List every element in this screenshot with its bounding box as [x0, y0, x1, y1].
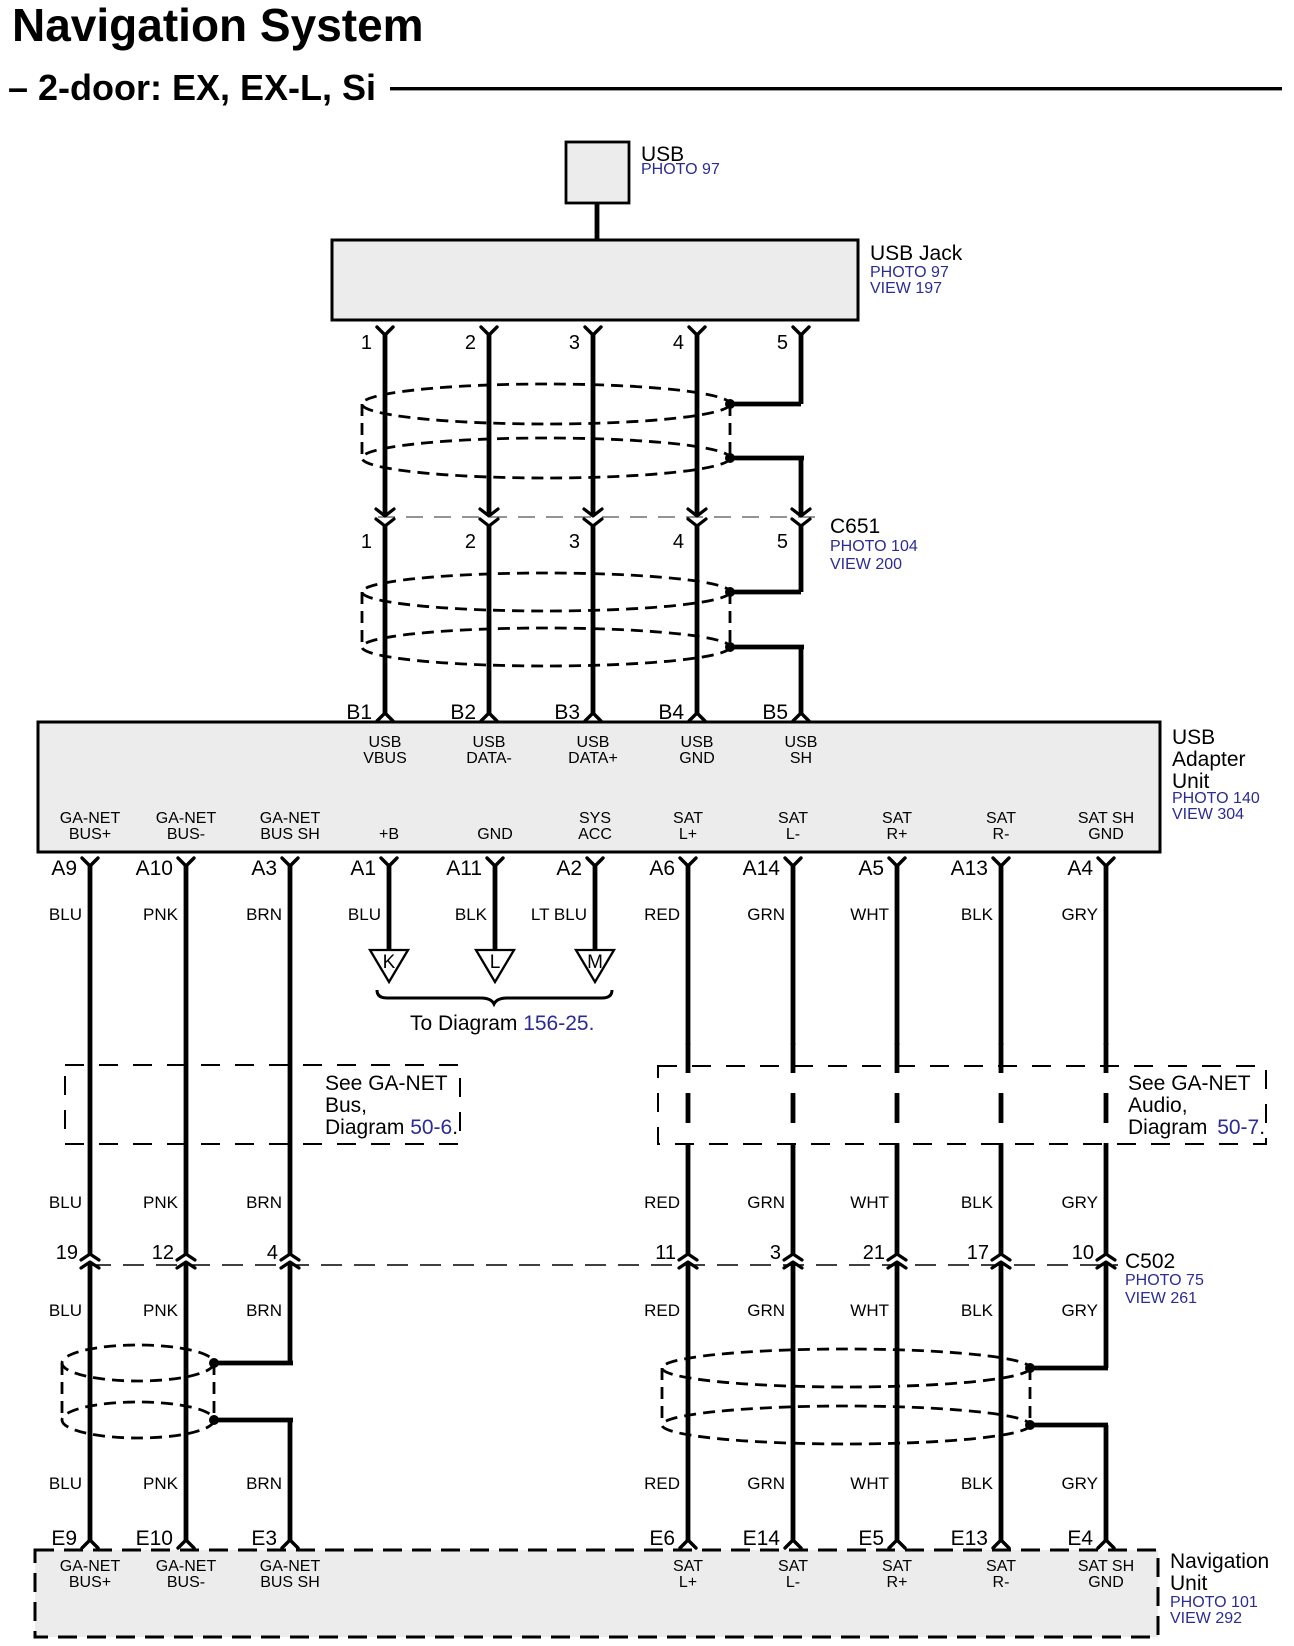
svg-text:4: 4 [673, 332, 684, 354]
svg-text:E4: E4 [1067, 1527, 1093, 1550]
svg-text:GRY: GRY [1061, 1193, 1098, 1212]
svg-text:SAT: SAT [673, 1558, 703, 1575]
svg-text:1: 1 [361, 531, 372, 553]
svg-text:BUS SH: BUS SH [260, 826, 320, 843]
svg-text:A10: A10 [136, 857, 173, 880]
svg-text:R+: R+ [887, 1574, 908, 1591]
svg-text:LT BLU: LT BLU [531, 905, 587, 924]
svg-text:PHOTO 97: PHOTO 97 [641, 161, 720, 178]
svg-text:VBUS: VBUS [363, 750, 407, 767]
svg-text:A11: A11 [446, 857, 482, 880]
svg-text:SAT: SAT [778, 1558, 808, 1575]
svg-text:VIEW 304: VIEW 304 [1172, 806, 1244, 823]
svg-text:BLU: BLU [348, 905, 381, 924]
svg-text:RED: RED [644, 1474, 680, 1493]
svg-text:11: 11 [655, 1242, 676, 1264]
svg-text:SAT: SAT [986, 1558, 1016, 1575]
svg-text:3: 3 [770, 1242, 781, 1264]
svg-text:C651: C651 [830, 515, 880, 538]
svg-text:A1: A1 [350, 857, 376, 880]
svg-text:PHOTO 101: PHOTO 101 [1170, 1594, 1258, 1611]
svg-text:SAT SH: SAT SH [1078, 810, 1134, 827]
svg-text:E5: E5 [858, 1527, 884, 1550]
svg-text:USB: USB [681, 734, 714, 751]
svg-text:PHOTO 104: PHOTO 104 [830, 538, 918, 555]
svg-text:PNK: PNK [143, 1301, 179, 1320]
svg-text:DATA+: DATA+ [568, 750, 618, 767]
svg-text:PNK: PNK [143, 905, 179, 924]
svg-text:R-: R- [993, 1574, 1010, 1591]
svg-text:4: 4 [673, 531, 684, 553]
svg-text:R-: R- [993, 826, 1010, 843]
svg-text:RED: RED [644, 1301, 680, 1320]
svg-text:GA-NET: GA-NET [60, 1558, 121, 1575]
svg-text:BUS+: BUS+ [69, 826, 111, 843]
svg-text:K: K [383, 952, 396, 973]
svg-text:SAT: SAT [778, 810, 808, 827]
svg-text:E14: E14 [743, 1527, 781, 1550]
svg-text:SH: SH [790, 750, 812, 767]
svg-text:SAT: SAT [986, 810, 1016, 827]
svg-text:E9: E9 [51, 1527, 77, 1550]
svg-text:See GA-NET: See GA-NET [325, 1072, 448, 1095]
svg-text:L-: L- [786, 1574, 800, 1591]
svg-text:RED: RED [644, 1193, 680, 1212]
svg-text:SAT: SAT [882, 810, 912, 827]
svg-text:A6: A6 [649, 857, 675, 880]
svg-text:L+: L+ [679, 1574, 697, 1591]
svg-text:M: M [587, 952, 603, 973]
svg-text:VIEW 261: VIEW 261 [1125, 1290, 1197, 1307]
svg-text:L+: L+ [679, 826, 697, 843]
svg-text:WHT: WHT [850, 1193, 889, 1212]
svg-text:BUS SH: BUS SH [260, 1574, 320, 1591]
svg-text:A14: A14 [743, 857, 781, 880]
svg-text:E6: E6 [649, 1527, 675, 1550]
svg-text:SYS: SYS [579, 810, 611, 827]
svg-text:To Diagram 156-25.: To Diagram 156-25. [410, 1012, 594, 1035]
svg-text:C502: C502 [1125, 1250, 1175, 1273]
svg-text:BLK: BLK [961, 1301, 994, 1320]
svg-text:GRN: GRN [747, 1193, 785, 1212]
svg-text:BRN: BRN [246, 905, 282, 924]
svg-text:5: 5 [777, 531, 788, 553]
svg-text:Unit: Unit [1170, 1572, 1208, 1595]
svg-text:SAT SH: SAT SH [1078, 1558, 1134, 1575]
svg-text:GND: GND [477, 826, 513, 843]
svg-text:3: 3 [569, 332, 580, 354]
svg-text:WHT: WHT [850, 905, 889, 924]
svg-text:Diagram 50-7.: Diagram 50-7. [1128, 1116, 1265, 1139]
svg-text:17: 17 [967, 1242, 989, 1264]
svg-text:12: 12 [152, 1242, 174, 1264]
svg-text:GRN: GRN [747, 1474, 785, 1493]
svg-text:A4: A4 [1067, 857, 1093, 880]
svg-text:BRN: BRN [246, 1193, 282, 1212]
svg-text:USB: USB [369, 734, 402, 751]
svg-text:GRN: GRN [747, 905, 785, 924]
svg-text:L: L [490, 952, 501, 973]
svg-text:GA-NET: GA-NET [260, 1558, 321, 1575]
svg-text:BLU: BLU [49, 1193, 82, 1212]
svg-text:BUS+: BUS+ [69, 1574, 111, 1591]
svg-text:A2: A2 [556, 857, 582, 880]
svg-text:3: 3 [569, 531, 580, 553]
svg-text:R+: R+ [887, 826, 908, 843]
svg-text:Navigation System: Navigation System [12, 0, 424, 51]
svg-text:BLU: BLU [49, 1474, 82, 1493]
svg-text:10: 10 [1072, 1242, 1094, 1264]
svg-text:PHOTO 97: PHOTO 97 [870, 264, 949, 281]
svg-text:SAT: SAT [882, 1558, 912, 1575]
svg-text:19: 19 [56, 1242, 78, 1264]
svg-text:USB: USB [1172, 726, 1215, 749]
svg-text:BLK: BLK [961, 905, 994, 924]
svg-text:GA-NET: GA-NET [156, 1558, 217, 1575]
svg-text:SAT: SAT [673, 810, 703, 827]
svg-text:BLK: BLK [961, 1193, 994, 1212]
svg-text:GRY: GRY [1061, 905, 1098, 924]
svg-text:GA-NET: GA-NET [60, 810, 121, 827]
svg-text:E13: E13 [951, 1527, 988, 1550]
svg-text:– 2-door: EX, EX-L, Si: – 2-door: EX, EX-L, Si [8, 67, 376, 108]
svg-text:BRN: BRN [246, 1301, 282, 1320]
svg-text:Diagram 50-6.: Diagram 50-6. [325, 1116, 458, 1139]
svg-text:PNK: PNK [143, 1474, 179, 1493]
svg-text:BUS-: BUS- [167, 1574, 205, 1591]
svg-text:PNK: PNK [143, 1193, 179, 1212]
svg-text:BLK: BLK [961, 1474, 994, 1493]
svg-text:WHT: WHT [850, 1301, 889, 1320]
svg-text:2: 2 [465, 531, 476, 553]
svg-text:GND: GND [1088, 826, 1124, 843]
svg-text:L-: L- [786, 826, 800, 843]
svg-text:ACC: ACC [578, 826, 612, 843]
svg-text:GA-NET: GA-NET [156, 810, 217, 827]
svg-text:PHOTO 140: PHOTO 140 [1172, 790, 1260, 807]
svg-text:GRY: GRY [1061, 1301, 1098, 1320]
svg-text:+B: +B [379, 826, 399, 843]
svg-text:1: 1 [361, 332, 372, 354]
svg-text:USB: USB [577, 734, 610, 751]
svg-text:BRN: BRN [246, 1474, 282, 1493]
svg-text:WHT: WHT [850, 1474, 889, 1493]
svg-text:Bus,: Bus, [325, 1094, 367, 1117]
svg-text:BLK: BLK [455, 905, 488, 924]
svg-text:BLU: BLU [49, 1301, 82, 1320]
svg-text:GRN: GRN [747, 1301, 785, 1320]
svg-text:5: 5 [777, 332, 788, 354]
svg-text:A9: A9 [51, 857, 77, 880]
svg-text:2: 2 [465, 332, 476, 354]
svg-text:USB: USB [473, 734, 506, 751]
svg-text:GND: GND [679, 750, 715, 767]
svg-text:DATA-: DATA- [466, 750, 512, 767]
svg-text:Navigation: Navigation [1170, 1550, 1269, 1573]
svg-text:USB Jack: USB Jack [870, 242, 963, 265]
svg-text:GND: GND [1088, 1574, 1124, 1591]
svg-text:4: 4 [267, 1242, 278, 1264]
svg-text:BLU: BLU [49, 905, 82, 924]
svg-text:GRY: GRY [1061, 1474, 1098, 1493]
svg-text:VIEW 292: VIEW 292 [1170, 1610, 1242, 1627]
svg-text:E3: E3 [251, 1527, 277, 1550]
svg-text:BUS-: BUS- [167, 826, 205, 843]
svg-text:Adapter: Adapter [1172, 748, 1246, 771]
svg-text:A5: A5 [858, 857, 884, 880]
svg-text:Audio,: Audio, [1128, 1094, 1188, 1117]
svg-text:RED: RED [644, 905, 680, 924]
svg-text:GA-NET: GA-NET [260, 810, 321, 827]
svg-text:VIEW 197: VIEW 197 [870, 280, 942, 297]
svg-text:See GA-NET: See GA-NET [1128, 1072, 1251, 1095]
svg-text:PHOTO 75: PHOTO 75 [1125, 1272, 1204, 1289]
svg-text:A13: A13 [951, 857, 988, 880]
svg-text:E10: E10 [136, 1527, 173, 1550]
svg-text:VIEW 200: VIEW 200 [830, 556, 902, 573]
svg-text:USB: USB [785, 734, 818, 751]
svg-text:A3: A3 [251, 857, 277, 880]
svg-text:21: 21 [863, 1242, 885, 1264]
